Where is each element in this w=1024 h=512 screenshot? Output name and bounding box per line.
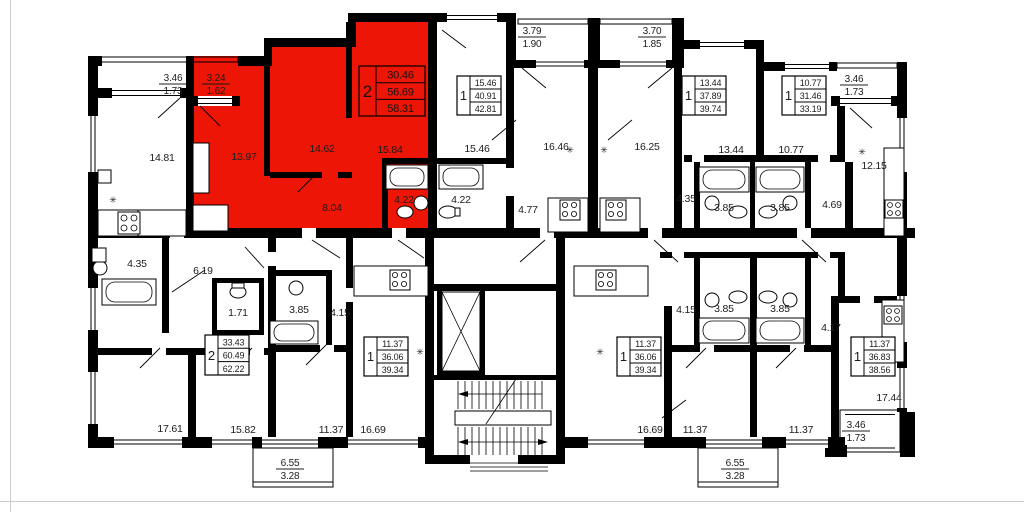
- window-top-apt-a: [447, 13, 497, 22]
- total-area: 33.19: [800, 104, 822, 114]
- vent-icon: ✳: [416, 347, 424, 357]
- room-area-label: 6.19: [193, 265, 213, 277]
- svg-text:3.24: 3.24: [207, 73, 226, 84]
- svg-text:1.62: 1.62: [207, 86, 226, 97]
- room-area-label: 14.62: [309, 143, 335, 155]
- rooms-count: 1: [785, 88, 792, 103]
- kitchen-counter: [193, 143, 209, 193]
- stove: [884, 306, 902, 324]
- room-area-label: 16.69: [360, 424, 386, 436]
- floor-plan-canvas: ✳ ✳ ✳ ✳ ✳ ✳ 14.81 13.97 14.62 15.8: [0, 0, 1024, 512]
- apartment-area: 56.69: [387, 87, 414, 99]
- bathtub: [699, 318, 749, 343]
- balcony-area-label: 3.79 1.90: [518, 26, 546, 50]
- apartment-area: 36.06: [635, 352, 657, 362]
- washer: [98, 170, 111, 183]
- room-area-label: 4.17: [821, 322, 841, 334]
- apartment-info-box[interactable]: 1 13.44 37.89 39.74: [682, 76, 726, 115]
- svg-text:3.79: 3.79: [523, 26, 542, 37]
- living-area: 10.77: [800, 78, 822, 88]
- room-area-label: 16.46: [543, 141, 569, 153]
- room-area-label: 11.37: [683, 424, 708, 436]
- svg-text:1.73: 1.73: [847, 433, 866, 444]
- room-area-label: 15.84: [377, 144, 403, 156]
- living-area: 11.37: [635, 339, 656, 349]
- stairwell: [442, 292, 551, 471]
- kitchen-counter: [884, 148, 904, 236]
- room-area-label: 3.85: [289, 304, 309, 316]
- room-area-label: 3.85: [770, 303, 790, 315]
- floor-plan: ✳ ✳ ✳ ✳ ✳ ✳ 14.81 13.97 14.62 15.8: [0, 0, 1024, 512]
- total-area: 42.81: [475, 104, 497, 114]
- rooms-count: 2: [363, 82, 372, 101]
- room-area-label: 17.44: [876, 392, 902, 404]
- rooms-count: 1: [367, 349, 374, 364]
- room-area-label: 4.15: [330, 307, 350, 319]
- stove: [596, 270, 616, 290]
- bathtub: [756, 167, 804, 192]
- svg-text:1.73: 1.73: [164, 86, 183, 97]
- room-area-label: 8.04: [322, 202, 342, 214]
- room-area-label: 4.77: [518, 204, 538, 216]
- svg-text:6.55: 6.55: [726, 458, 745, 469]
- room-area-label: 4.22: [394, 194, 414, 206]
- stove: [606, 200, 626, 220]
- bathtub: [439, 165, 483, 189]
- balcony-area-label: 6.55 3.28: [276, 458, 304, 482]
- stove: [885, 200, 903, 218]
- window-top-apt-b: [700, 40, 744, 49]
- room-area-label: 1.71: [228, 307, 248, 319]
- room-area-label: 10.77: [778, 144, 804, 156]
- apartment-info-box[interactable]: 2 33.43 60.49 62.22: [205, 335, 249, 375]
- room-area-label: 16.69: [637, 424, 663, 436]
- living-area: 15.46: [475, 78, 497, 88]
- room-area-label: 3.85: [714, 303, 734, 315]
- vent-icon: ✳: [596, 347, 604, 357]
- balcony-area-label: 3.70 1.85: [638, 26, 666, 50]
- living-area: 13.44: [700, 78, 722, 88]
- room-area-label: 15.82: [230, 424, 256, 436]
- apartment-area: 60.49: [223, 351, 245, 361]
- apartment-info-box[interactable]: 1 11.37 36.06 39.34: [617, 337, 661, 376]
- svg-text:3.28: 3.28: [281, 471, 300, 482]
- sink: [93, 261, 107, 275]
- bathtub: [386, 165, 428, 189]
- rooms-count: 1: [854, 349, 861, 364]
- toilet: [397, 206, 413, 218]
- vent-icon: ✳: [858, 147, 866, 157]
- bathtub: [756, 318, 804, 343]
- kitchen-counter: [193, 205, 228, 231]
- total-area: 38.56: [869, 365, 891, 375]
- room-area-label: 14.81: [149, 152, 175, 164]
- total-area: 62.22: [223, 364, 245, 374]
- apartment-area: 36.06: [382, 352, 404, 362]
- rooms-count: 1: [685, 88, 692, 103]
- total-area: 39.34: [635, 365, 657, 375]
- apartment-area: 40.91: [475, 91, 497, 101]
- living-area: 30.46: [387, 70, 414, 82]
- room-area-label: 13.97: [231, 151, 257, 163]
- rooms-count: 1: [620, 349, 627, 364]
- bottom-windows: [114, 437, 828, 448]
- bathtub: [699, 167, 749, 192]
- total-area: 58.31: [387, 103, 414, 115]
- kitchen-counter: [138, 210, 186, 236]
- room-area-label: 11.37: [319, 424, 344, 436]
- balcony-area-label: 3.46 1.73: [842, 420, 870, 444]
- room-area-label: 16.25: [634, 141, 660, 153]
- apartment-info-box[interactable]: 1 11.37 36.06 39.34: [364, 337, 408, 376]
- living-area: 33.43: [223, 337, 245, 347]
- toilet: [729, 291, 747, 303]
- bathtub: [270, 321, 318, 344]
- sink: [289, 281, 303, 295]
- vent-icon: ✳: [600, 145, 608, 155]
- vent-icon: ✳: [109, 195, 117, 205]
- window-top-apt-e: [785, 62, 829, 71]
- apartment-info-box[interactable]: 1 10.77 31.46 33.19: [782, 76, 826, 115]
- svg-text:3.46: 3.46: [845, 74, 864, 85]
- svg-text:3.70: 3.70: [643, 26, 662, 37]
- room-area-label: 4.15: [676, 304, 696, 316]
- svg-text:1.73: 1.73: [845, 87, 864, 98]
- window-balcony-d: [620, 60, 666, 68]
- room-area-label: 11.37: [789, 424, 814, 436]
- stove: [390, 270, 410, 290]
- living-area: 11.37: [382, 339, 403, 349]
- apartment-area: 37.89: [700, 91, 722, 101]
- svg-text:6.55: 6.55: [281, 458, 300, 469]
- total-area: 39.34: [382, 365, 404, 375]
- svg-text:3.46: 3.46: [847, 420, 866, 431]
- bathtub: [102, 279, 156, 305]
- balcony-area-label: 6.55 3.28: [721, 458, 749, 482]
- balcony-area-label: 3.46 1.73: [840, 74, 868, 98]
- toilet: [230, 283, 246, 298]
- living-area: 11.37: [869, 339, 890, 349]
- svg-text:3.28: 3.28: [726, 471, 745, 482]
- window-balcony-c: [536, 60, 584, 68]
- room-area-label: 17.61: [157, 423, 183, 435]
- apartment-area: 31.46: [800, 91, 822, 101]
- svg-text:3.46: 3.46: [164, 73, 183, 84]
- apartment-info-box[interactable]: 1 11.37 36.83 38.56: [851, 337, 895, 376]
- stove: [118, 212, 140, 234]
- toilet: [439, 206, 460, 218]
- room-area-label: 4.22: [451, 194, 471, 206]
- room-area-label: 15.46: [464, 143, 490, 155]
- room-area-label: 12.15: [861, 160, 887, 172]
- sink: [414, 196, 428, 210]
- stove: [560, 200, 580, 220]
- washer: [92, 248, 106, 262]
- toilet: [759, 291, 777, 303]
- svg-text:1.85: 1.85: [643, 39, 662, 50]
- room-area-label: 13.44: [718, 144, 744, 156]
- total-area: 39.74: [700, 104, 722, 114]
- rooms-count: 1: [460, 88, 467, 103]
- window-band-red-balcony: [198, 96, 232, 106]
- room-area-label: 4.35: [127, 258, 147, 270]
- rooms-count: 2: [208, 348, 215, 363]
- room-area-label: 3.85: [714, 202, 734, 214]
- apartment-info-box[interactable]: 1 15.46 40.91 42.81: [457, 76, 501, 115]
- room-area-label: 4.35: [676, 193, 696, 205]
- apartment-area: 36.83: [869, 352, 891, 362]
- svg-text:1.90: 1.90: [523, 39, 542, 50]
- room-area-label: 4.69: [822, 199, 842, 211]
- room-area-label: 3.85: [770, 202, 790, 214]
